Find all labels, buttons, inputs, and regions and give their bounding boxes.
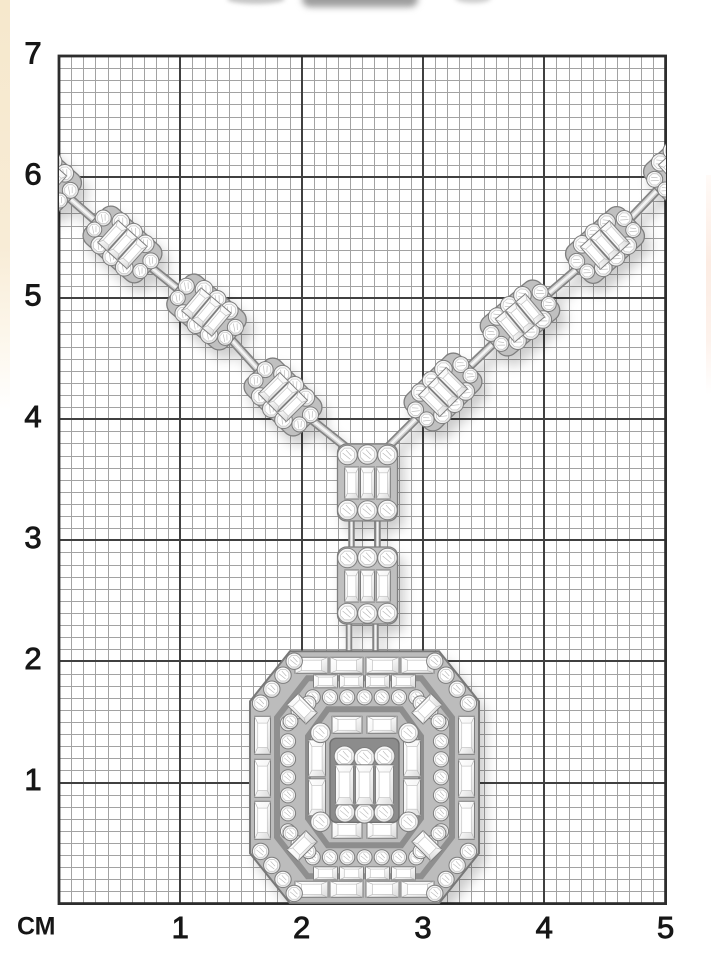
svg-text:CM: CM [17,913,55,941]
svg-text:2: 2 [293,910,310,945]
svg-text:1: 1 [172,910,189,945]
svg-text:2: 2 [24,641,41,676]
svg-text:5: 5 [24,278,41,313]
svg-text:4: 4 [536,910,553,945]
svg-text:5: 5 [657,910,674,945]
svg-text:6: 6 [24,157,41,192]
svg-text:1: 1 [24,762,41,797]
svg-text:3: 3 [24,520,41,555]
svg-text:7: 7 [24,36,41,71]
svg-text:4: 4 [24,399,41,434]
svg-text:3: 3 [414,910,431,945]
